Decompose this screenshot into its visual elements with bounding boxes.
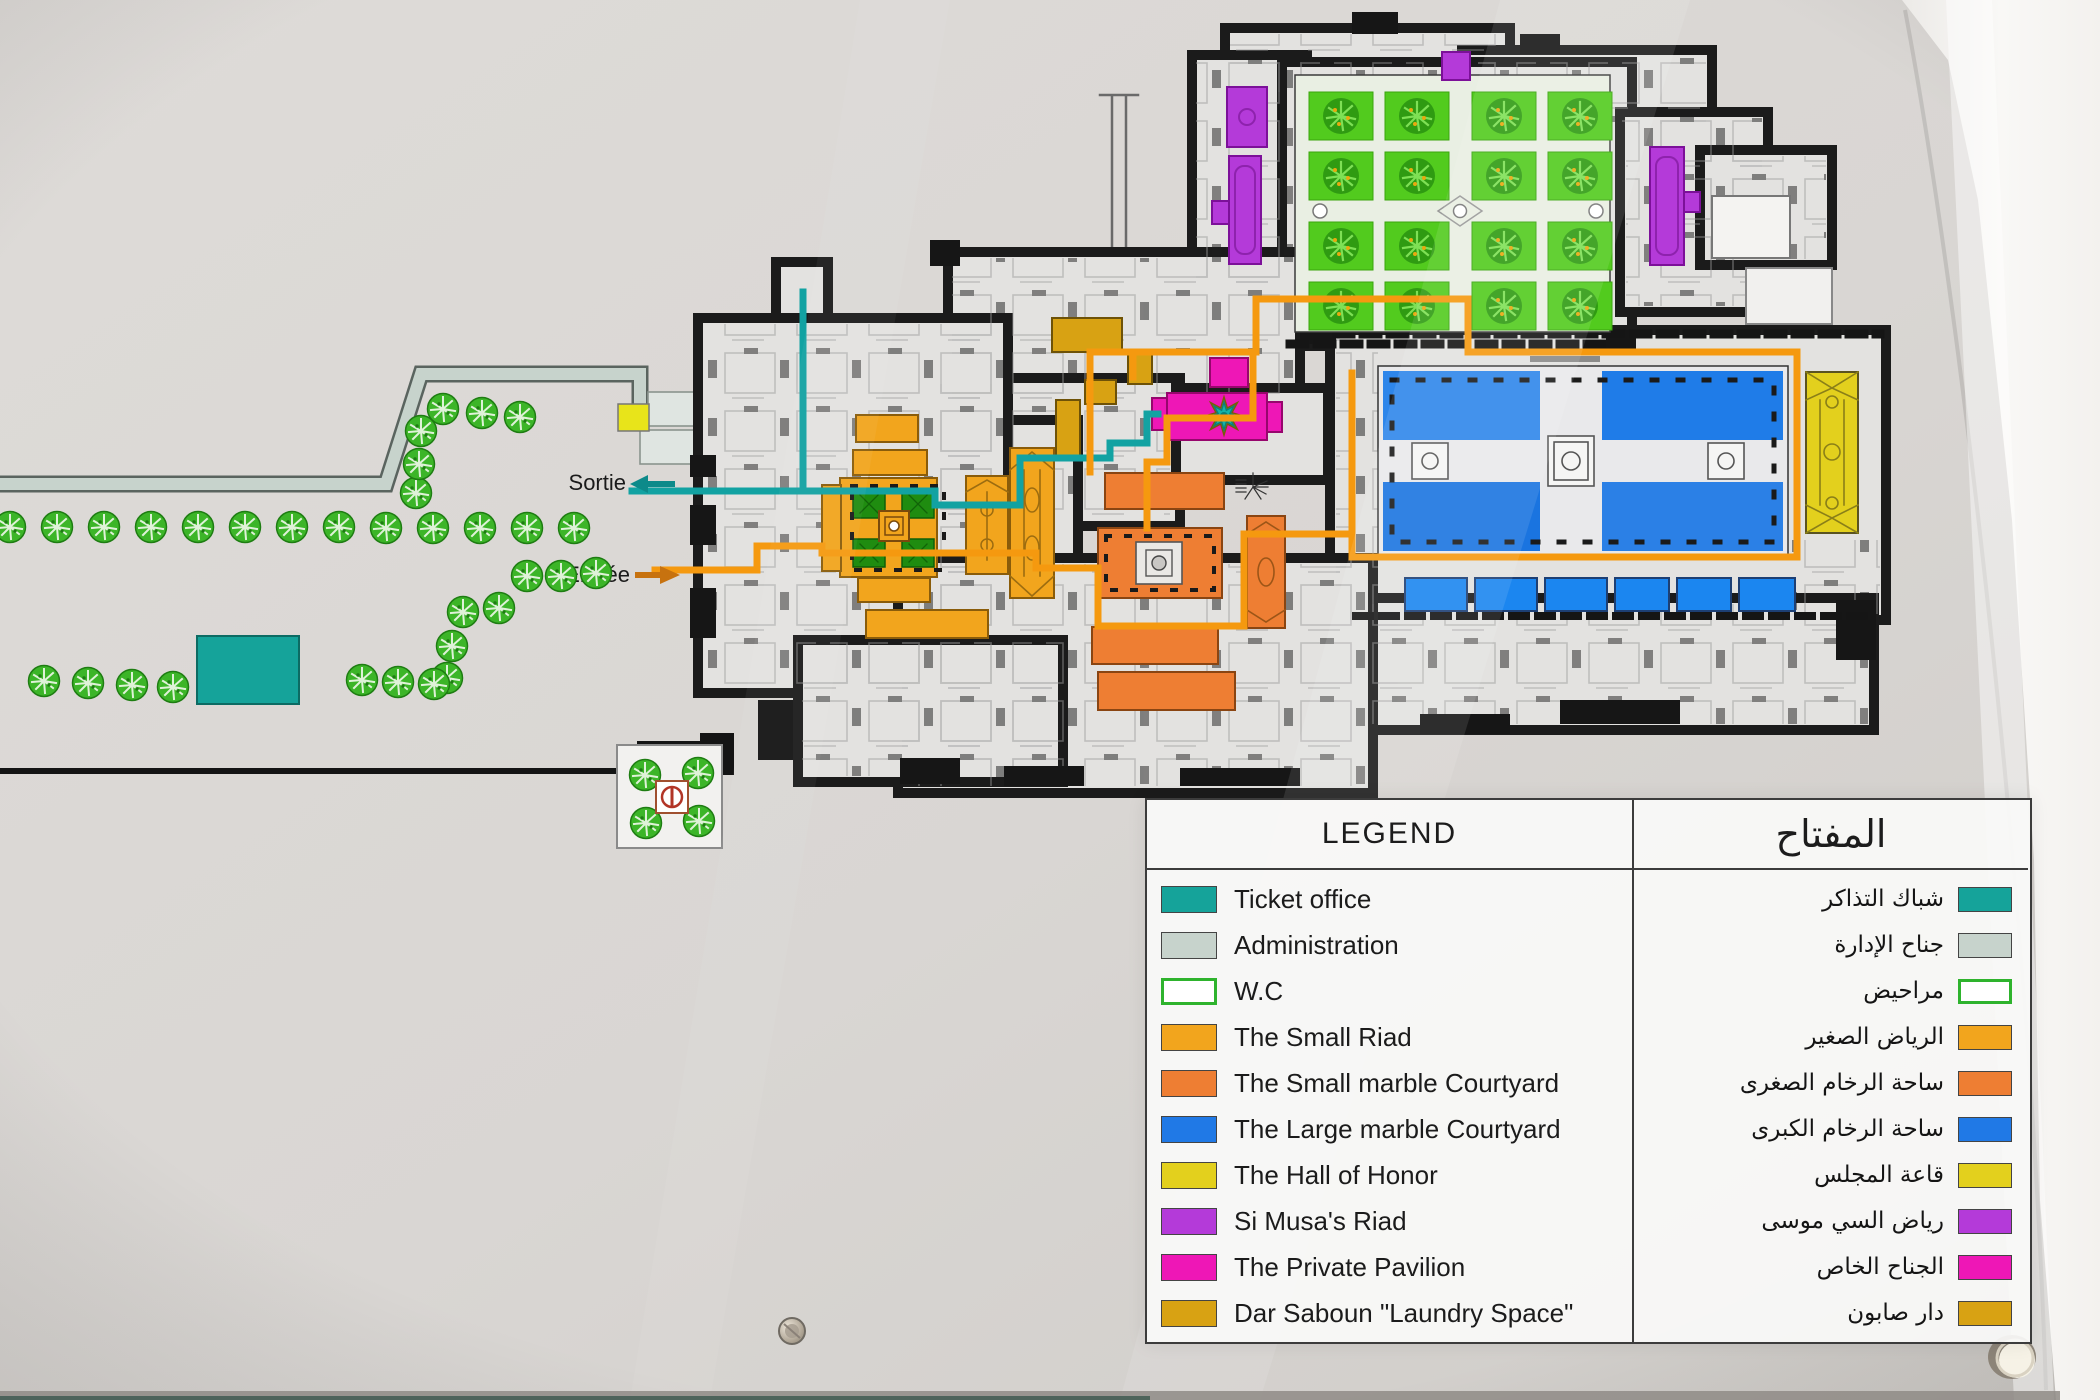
legend-label: الجناح الخاص <box>1817 1254 1944 1280</box>
color-swatch <box>1958 887 2012 912</box>
legend-row: شباك التذاكر <box>1634 877 2028 921</box>
legend-panel: LEGEND Ticket office Administration W.C … <box>1145 798 2032 1344</box>
color-swatch <box>1958 1071 2012 1096</box>
legend-row: Ticket office <box>1147 877 1632 921</box>
legend-english-column: LEGEND Ticket office Administration W.C … <box>1147 800 1634 1342</box>
legend-row: جناح الإدارة <box>1634 923 2028 967</box>
legend-label: The Large marble Courtyard <box>1234 1114 1561 1145</box>
color-swatch <box>1958 979 2012 1004</box>
color-swatch <box>1958 933 2012 958</box>
legend-label: The Private Pavilion <box>1234 1252 1465 1283</box>
legend-row: Si Musa's Riad <box>1147 1199 1632 1243</box>
legend-row: W.C <box>1147 969 1632 1013</box>
legend-row: Dar Saboun "Laundry Space" <box>1147 1291 1632 1335</box>
color-swatch <box>1958 1117 2012 1142</box>
legend-row: الرياض الصغير <box>1634 1015 2028 1059</box>
color-swatch <box>1958 1025 2012 1050</box>
legend-label: Dar Saboun "Laundry Space" <box>1234 1298 1573 1329</box>
color-swatch <box>1161 1024 1217 1051</box>
legend-label: مراحيض <box>1863 978 1944 1004</box>
color-swatch <box>1161 886 1217 913</box>
mounting-screw <box>779 1318 805 1344</box>
legend-label: Ticket office <box>1234 884 1371 915</box>
legend-label: قاعة المجلس <box>1814 1162 1944 1188</box>
legend-row: The Hall of Honor <box>1147 1153 1632 1197</box>
legend-label: ساحة الرخام الصغرى <box>1740 1070 1944 1096</box>
legend-label: Si Musa's Riad <box>1234 1206 1407 1237</box>
legend-row: رياض السي موسى <box>1634 1199 2028 1243</box>
legend-arabic-column: المفتاح شباك التذاكر جناح الإدارة مراحيض… <box>1634 800 2028 1342</box>
legend-row: ساحة الرخام الصغرى <box>1634 1061 2028 1105</box>
legend-title-ar: المفتاح <box>1634 800 2028 870</box>
legend-label: ساحة الرخام الكبرى <box>1751 1116 1944 1142</box>
color-swatch <box>1958 1163 2012 1188</box>
legend-label: The Small marble Courtyard <box>1234 1068 1559 1099</box>
legend-row: The Large marble Courtyard <box>1147 1107 1632 1151</box>
color-swatch <box>1161 932 1217 959</box>
color-swatch <box>1161 1300 1217 1327</box>
legend-label: The Hall of Honor <box>1234 1160 1438 1191</box>
legend-rows-ar: شباك التذاكر جناح الإدارة مراحيض الرياض … <box>1634 870 2028 1342</box>
legend-row: The Small marble Courtyard <box>1147 1061 1632 1105</box>
legend-row: The Small Riad <box>1147 1015 1632 1059</box>
color-swatch <box>1161 1116 1217 1143</box>
legend-label: دار صابون <box>1847 1300 1944 1326</box>
legend-row: Administration <box>1147 923 1632 967</box>
color-swatch <box>1161 1162 1217 1189</box>
legend-title-en: LEGEND <box>1147 800 1632 870</box>
legend-label: جناح الإدارة <box>1834 932 1944 958</box>
legend-label: شباك التذاكر <box>1822 886 1944 912</box>
legend-row: دار صابون <box>1634 1291 2028 1335</box>
legend-row: The Private Pavilion <box>1147 1245 1632 1289</box>
legend-label: The Small Riad <box>1234 1022 1412 1053</box>
color-swatch <box>1958 1301 2012 1326</box>
panel-bottom-edge <box>0 1391 2060 1400</box>
color-swatch <box>1161 1208 1217 1235</box>
legend-rows-en: Ticket office Administration W.C The Sma… <box>1147 870 1632 1342</box>
legend-row: ساحة الرخام الكبرى <box>1634 1107 2028 1151</box>
color-swatch <box>1161 978 1217 1005</box>
photo-of-palace-map-sign: { "map": { "exit_label": "Sortie", "entr… <box>0 0 2100 1400</box>
color-swatch <box>1958 1255 2012 1280</box>
legend-row: مراحيض <box>1634 969 2028 1013</box>
color-swatch <box>1958 1209 2012 1234</box>
color-swatch <box>1161 1254 1217 1281</box>
color-swatch <box>1161 1070 1217 1097</box>
legend-label: W.C <box>1234 976 1283 1007</box>
legend-label: رياض السي موسى <box>1761 1208 1944 1234</box>
legend-row: الجناح الخاص <box>1634 1245 2028 1289</box>
legend-label: الرياض الصغير <box>1805 1024 1944 1050</box>
legend-row: قاعة المجلس <box>1634 1153 2028 1197</box>
legend-label: Administration <box>1234 930 1399 961</box>
